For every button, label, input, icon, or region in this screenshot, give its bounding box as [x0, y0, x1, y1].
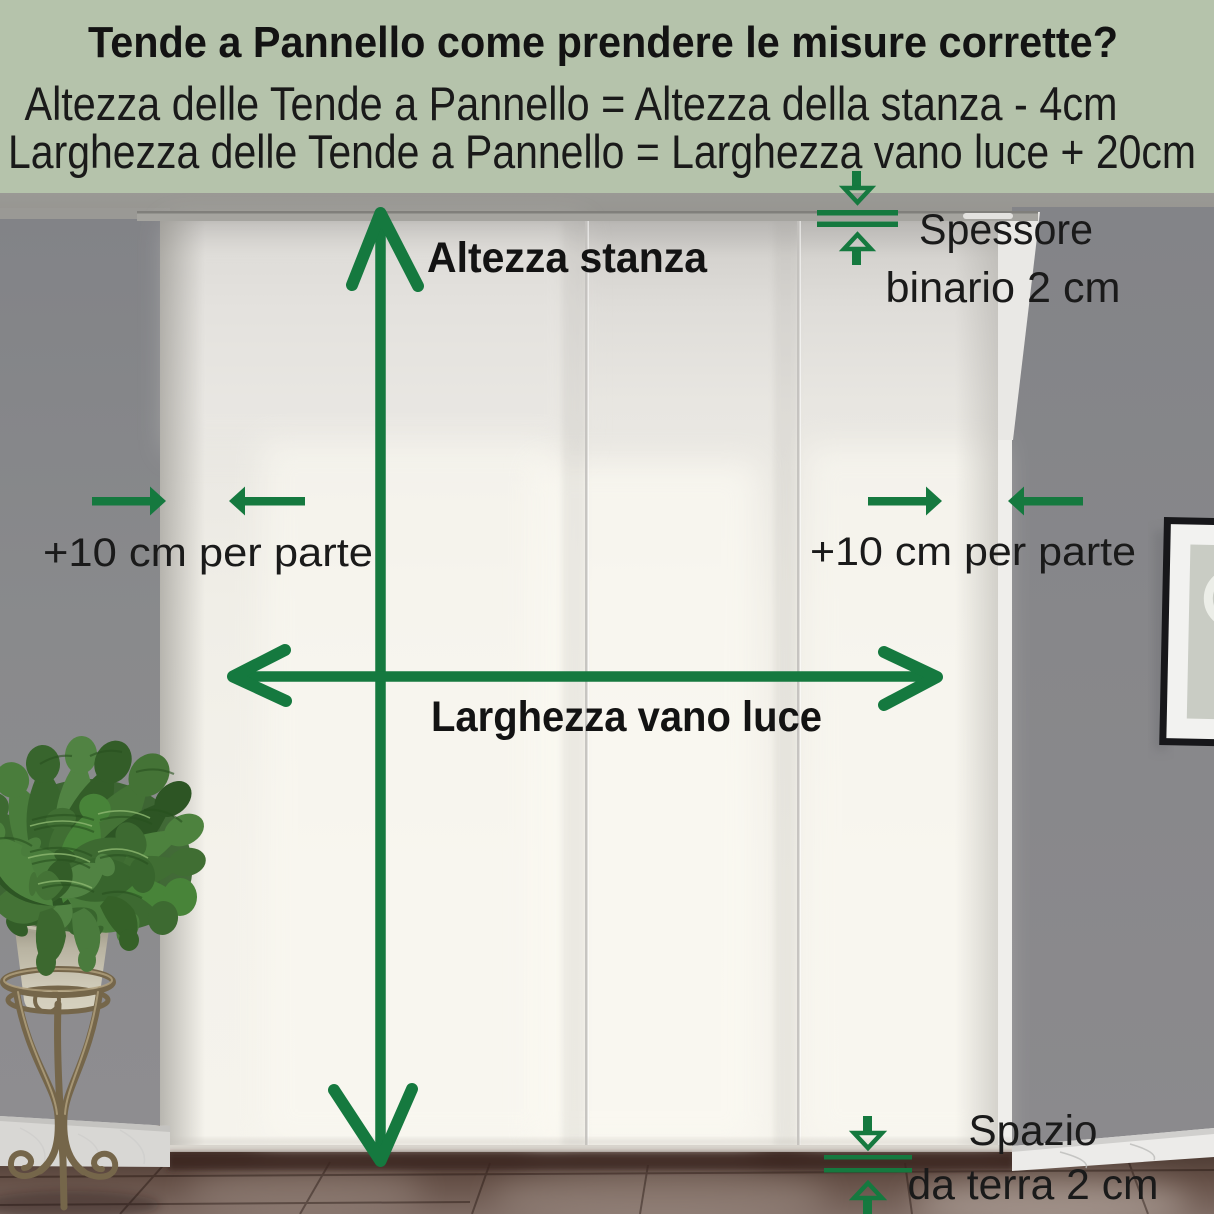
svg-text:Altezza delle Tende a Pannello: Altezza delle Tende a Pannello = Altezza… — [25, 77, 1118, 130]
svg-text:da terra 2 cm: da terra 2 cm — [908, 1161, 1159, 1209]
svg-text:+10 cm per parte: +10 cm per parte — [43, 531, 373, 575]
svg-text:Larghezza delle Tende a Pannel: Larghezza delle Tende a Pannello = Largh… — [8, 125, 1196, 178]
svg-text:Spazio: Spazio — [969, 1107, 1098, 1155]
svg-text:Larghezza vano luce: Larghezza vano luce — [431, 693, 822, 741]
svg-text:Tende a Pannello come prendere: Tende a Pannello come prendere le misure… — [88, 18, 1118, 67]
svg-text:binario 2 cm: binario 2 cm — [886, 264, 1121, 312]
svg-text:+10 cm per parte: +10 cm per parte — [810, 530, 1136, 574]
svg-text:Altezza stanza: Altezza stanza — [427, 234, 708, 282]
svg-text:Spessore: Spessore — [919, 206, 1093, 254]
